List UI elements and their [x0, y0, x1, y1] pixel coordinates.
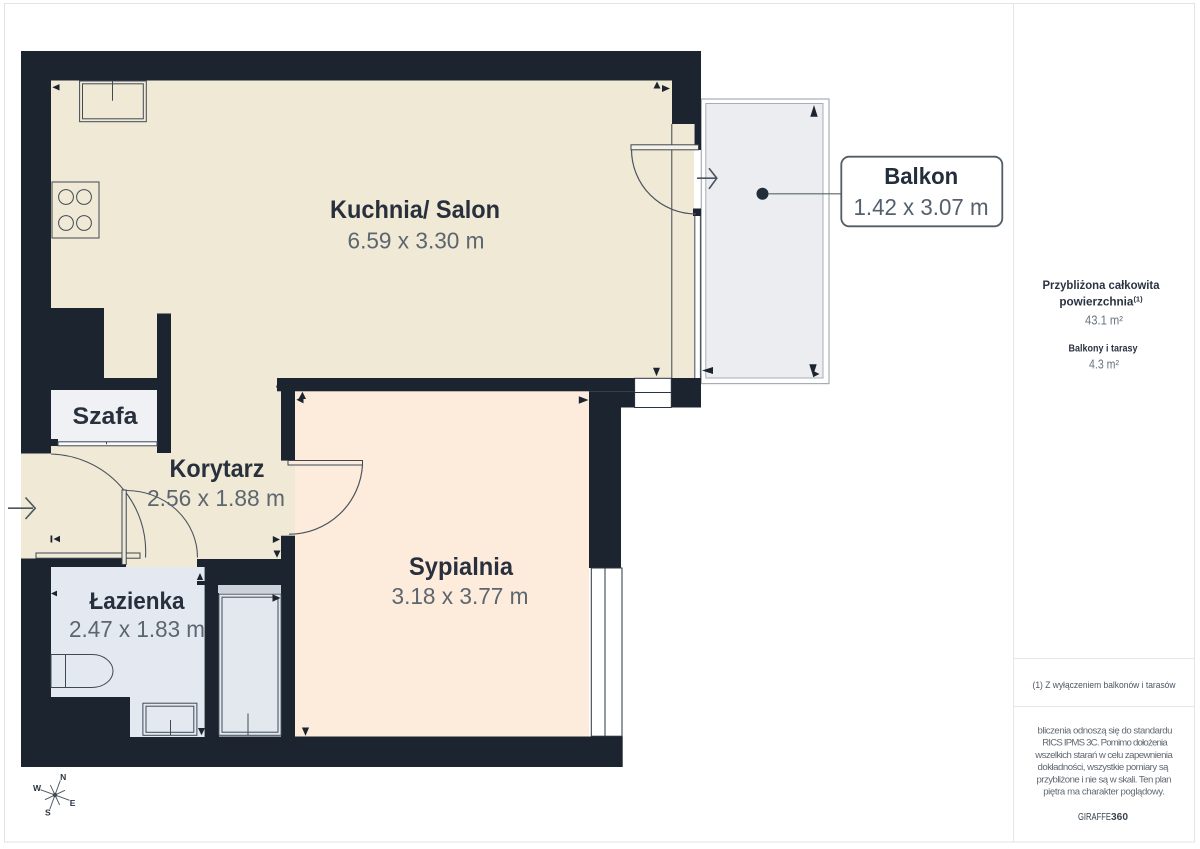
svg-text:Łazienka: Łazienka: [90, 588, 186, 615]
svg-text:6.59 x 3.30 m: 6.59 x 3.30 m: [348, 228, 485, 254]
svg-text:Sypialnia: Sypialnia: [409, 553, 514, 581]
svg-text:W: W: [33, 783, 42, 793]
svg-text:dokładności, wszystkie pomiary: dokładności, wszystkie pomiary są: [1038, 762, 1170, 773]
svg-text:Kuchnia/ Salon: Kuchnia/ Salon: [330, 196, 500, 224]
svg-text:E: E: [70, 798, 76, 808]
svg-text:S: S: [45, 808, 51, 818]
svg-text:piętra ma charakter poglądowy.: piętra ma charakter poglądowy.: [1043, 787, 1165, 798]
svg-text:2.47 x 1.83 m: 2.47 x 1.83 m: [69, 616, 205, 642]
svg-text:3.18 x 3.77 m: 3.18 x 3.77 m: [392, 583, 529, 609]
svg-text:GIRAFFE: GIRAFFE: [1078, 812, 1111, 823]
svg-text:(1) Z wyłączeniem balkonów i t: (1) Z wyłączeniem balkonów i tarasów: [1033, 680, 1176, 691]
svg-text:Balkon: Balkon: [884, 163, 958, 189]
svg-text:N: N: [60, 772, 66, 782]
svg-text:2.56 x 1.88 m: 2.56 x 1.88 m: [147, 485, 285, 511]
svg-text:1.42 x 3.07 m: 1.42 x 3.07 m: [854, 194, 989, 220]
svg-text:Przybliżona całkowita: Przybliżona całkowita: [1043, 279, 1160, 292]
svg-text:360: 360: [1111, 812, 1129, 823]
svg-text:przybliżone i nie są w skali.: przybliżone i nie są w skali. Ten plan: [1037, 774, 1172, 785]
svg-text:RICS IPMS 3C. Pomimo dołożenia: RICS IPMS 3C. Pomimo dołożenia: [1042, 738, 1168, 749]
svg-text:bliczenia odnoszą się do stand: bliczenia odnoszą się do standardu: [1038, 726, 1173, 737]
svg-text:powierzchnia(1): powierzchnia(1): [1059, 295, 1143, 309]
svg-text:Szafa: Szafa: [73, 403, 139, 430]
svg-text:4.3 m²: 4.3 m²: [1089, 358, 1119, 372]
svg-text:43.1 m²: 43.1 m²: [1085, 313, 1124, 328]
svg-text:wszelkich starań w celu zapewn: wszelkich starań w celu zapewnienia: [1034, 750, 1173, 761]
svg-text:Balkony i tarasy: Balkony i tarasy: [1069, 343, 1138, 355]
svg-text:Korytarz: Korytarz: [170, 455, 265, 483]
